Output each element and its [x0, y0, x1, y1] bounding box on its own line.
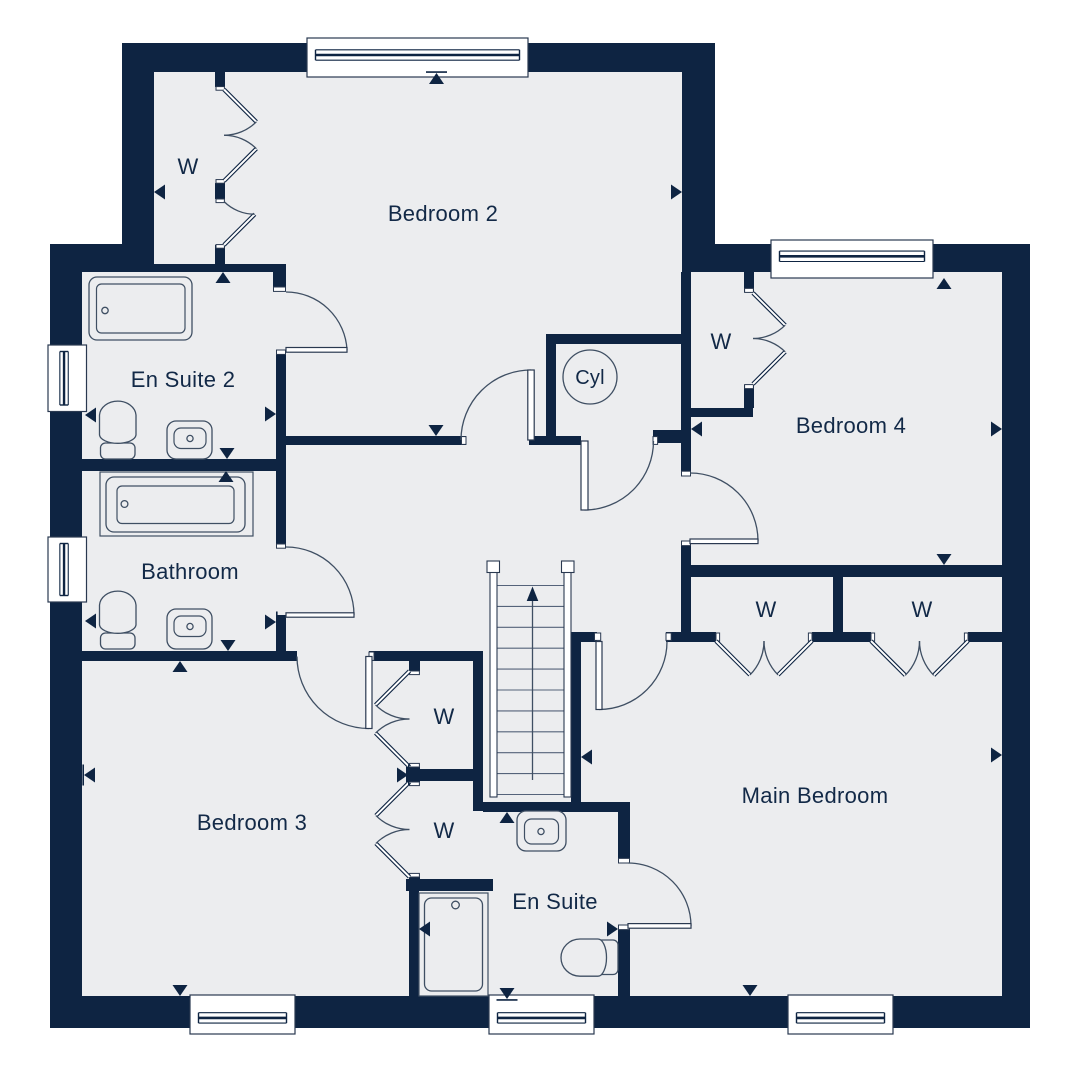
svg-text:Main Bedroom: Main Bedroom — [742, 783, 889, 808]
svg-text:W: W — [177, 154, 198, 179]
svg-text:W: W — [433, 818, 454, 843]
svg-text:En Suite: En Suite — [512, 889, 598, 914]
svg-text:Bedroom 2: Bedroom 2 — [388, 201, 498, 226]
svg-text:En Suite 2: En Suite 2 — [131, 367, 236, 392]
svg-text:W: W — [710, 329, 731, 354]
svg-text:Bedroom 4: Bedroom 4 — [796, 413, 906, 438]
svg-text:Cyl: Cyl — [575, 367, 605, 389]
svg-text:W: W — [911, 597, 932, 622]
svg-text:W: W — [755, 597, 776, 622]
svg-text:Bedroom 3: Bedroom 3 — [197, 810, 307, 835]
svg-text:W: W — [433, 704, 454, 729]
svg-text:Bathroom: Bathroom — [141, 559, 239, 584]
